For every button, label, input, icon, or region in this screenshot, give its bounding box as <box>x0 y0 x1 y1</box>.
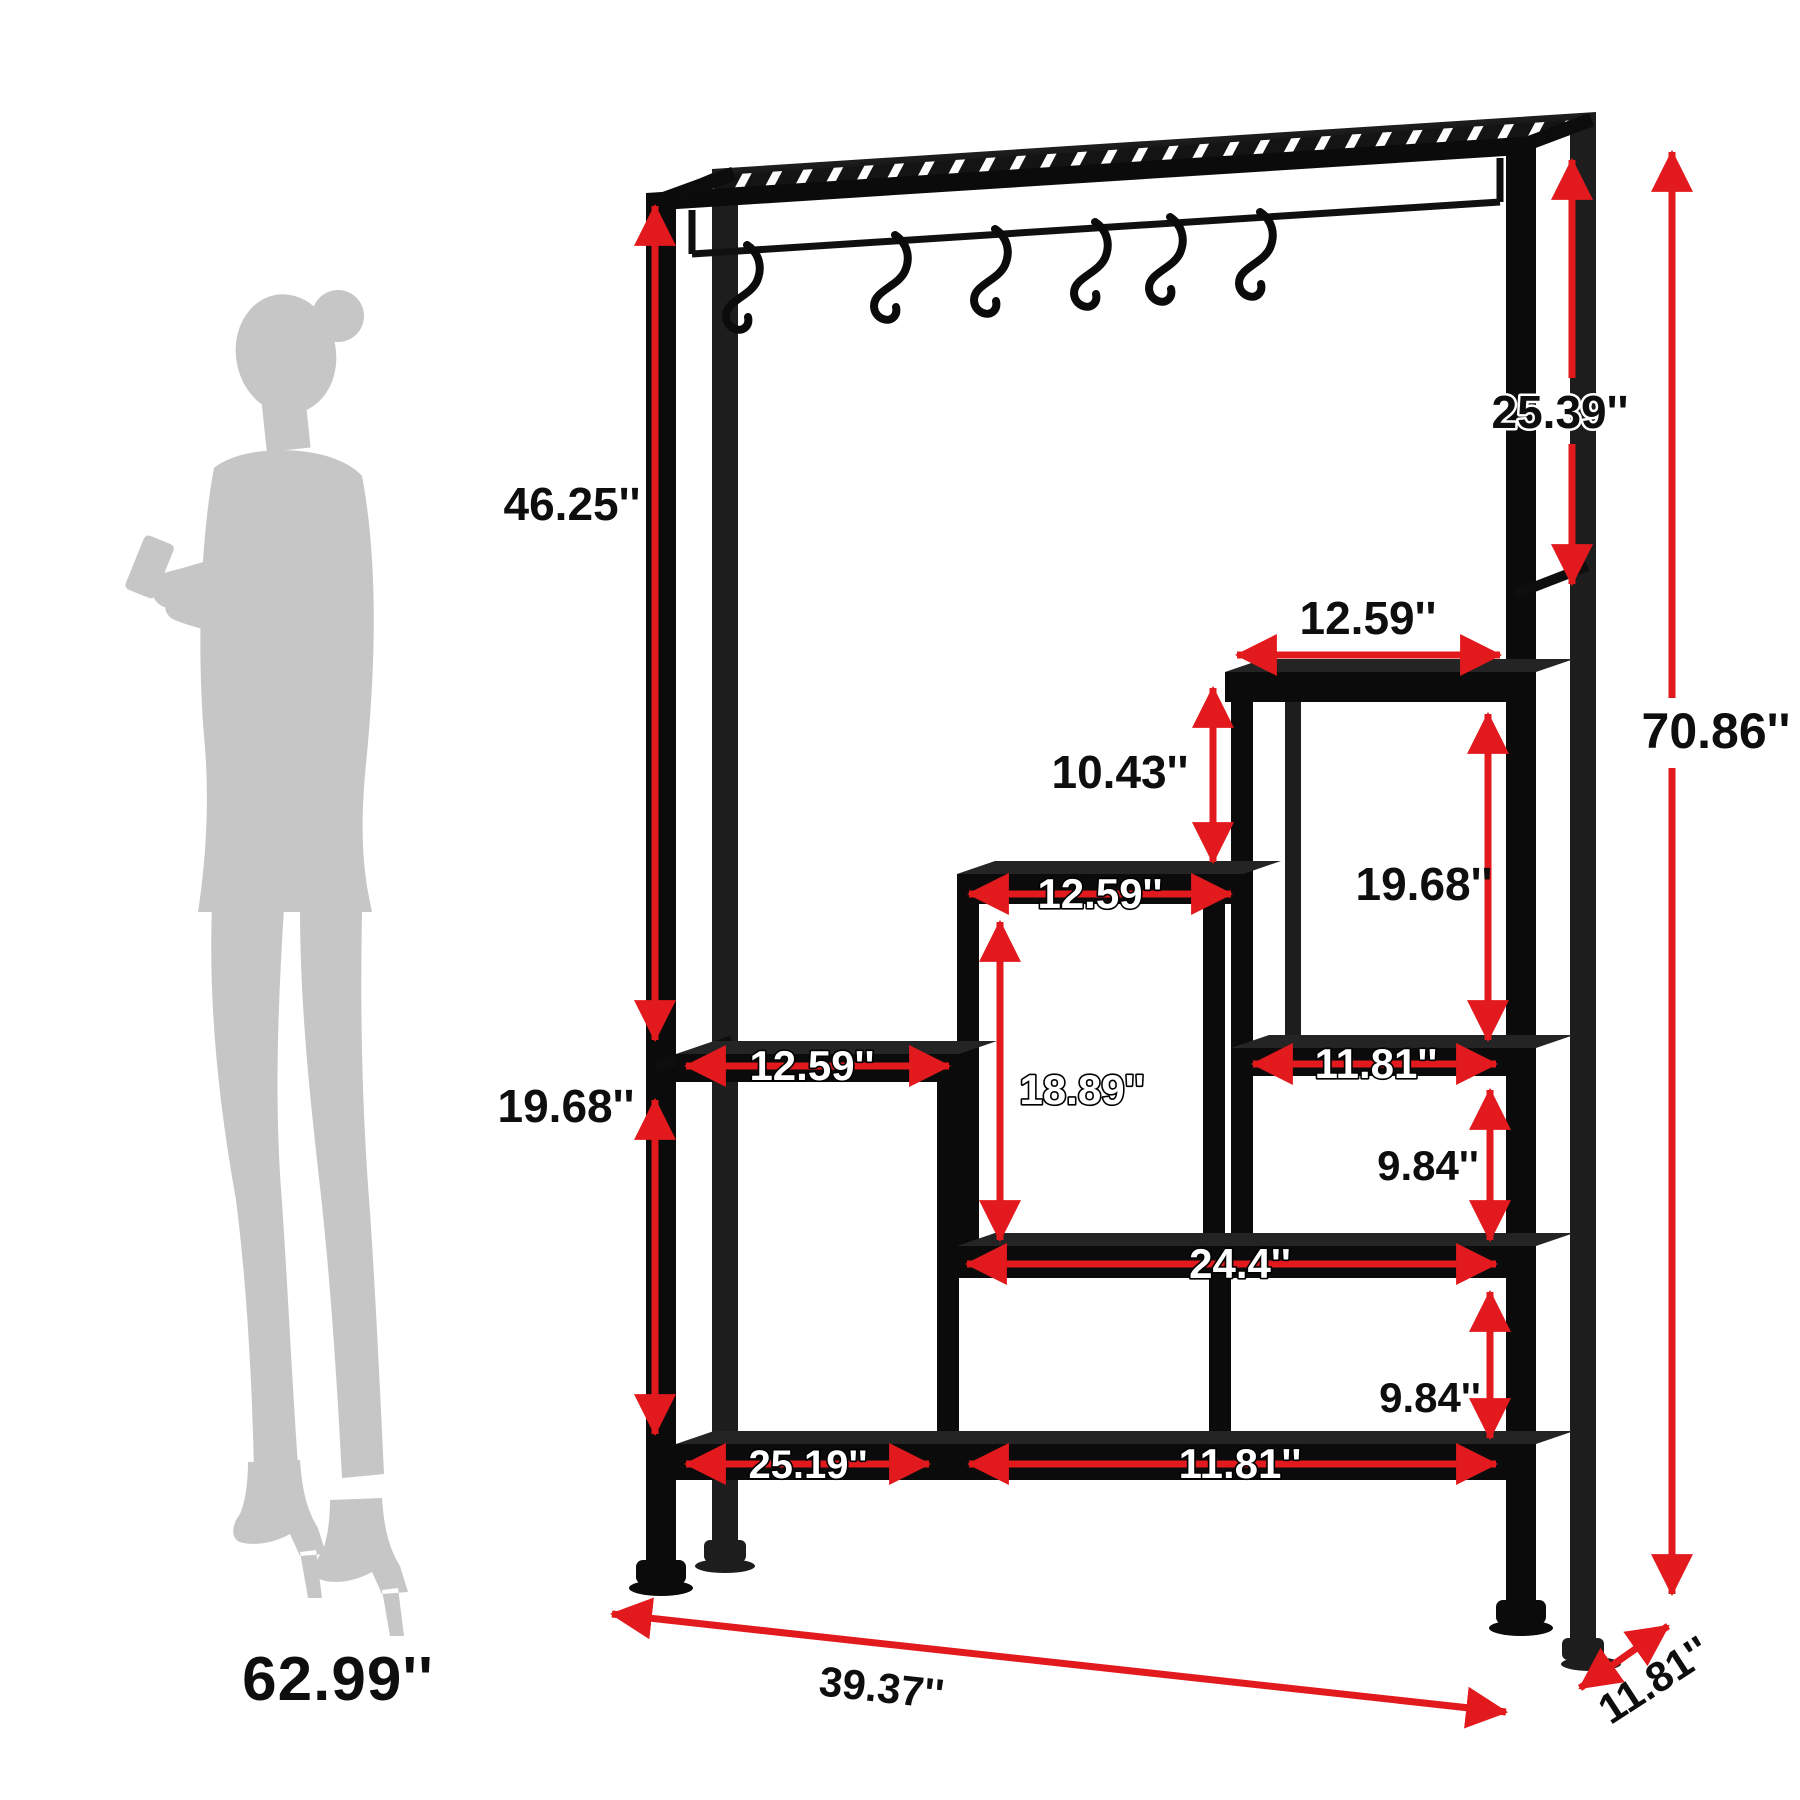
dim-right-lower-gap-label: 9.84'' <box>1379 1374 1481 1421</box>
front-left-foot-pad <box>629 1580 693 1596</box>
shoe-back <box>315 1498 408 1636</box>
dim-right-upper-opening-label: 19.68'' <box>1356 858 1493 910</box>
rear-left-foot-pad <box>695 1559 755 1573</box>
top-step-rear-leg <box>1285 700 1301 1044</box>
dim-overall-height-label: 70.86'' <box>1642 703 1791 759</box>
dimension-arrow-overall-width <box>612 1614 1506 1712</box>
s-hook-icon <box>1239 212 1273 297</box>
long-shelf-lower-leg <box>1209 1278 1231 1446</box>
left-shelf-leg <box>937 1082 959 1446</box>
s-hook-icon <box>1074 222 1108 307</box>
s-hook-icon <box>974 229 1008 314</box>
dim-overall-depth-label: 11.81'' <box>1590 1627 1719 1733</box>
person-silhouette <box>124 286 408 1636</box>
top-step-shelf <box>1225 672 1536 702</box>
top-step-shelf-topface <box>1225 659 1574 672</box>
right-shelf-lower-leg <box>1231 1076 1253 1246</box>
neck <box>261 396 310 452</box>
dim-right-upper-gap-label: 9.84'' <box>1377 1142 1479 1189</box>
product-dimension-diagram: 62.99'' <box>0 0 1800 1800</box>
middle-step-right-leg <box>1203 904 1225 1250</box>
front-right-post <box>1506 138 1536 1600</box>
shoe-front <box>233 1460 326 1598</box>
dim-lower-left-section-label: 19.68'' <box>498 1080 635 1132</box>
rear-right-foot <box>1562 1638 1604 1660</box>
dim-hook-bay-label: 25.39'' <box>1492 386 1629 438</box>
rear-left-foot <box>704 1540 746 1562</box>
dim-middle-shelf-width-label: 12.59'' <box>1037 870 1162 917</box>
dim-long-shelf-width-label: 24.4'' <box>1189 1240 1291 1287</box>
dim-bottom-left-width-label: 25.19'' <box>748 1443 867 1487</box>
diagram-canvas: 62.99'' <box>0 0 1800 1800</box>
dim-right-shelf-width-label: 11.81'' <box>1315 1040 1438 1087</box>
s-hook-icon <box>874 235 908 320</box>
s-hook-icon <box>1149 217 1183 302</box>
dim-middle-opening-label: 18.89'' <box>1019 1066 1144 1113</box>
front-right-foot-pad <box>1489 1620 1553 1636</box>
dim-top-step-rise-label: 10.43'' <box>1052 746 1189 798</box>
person-height-label: 62.99'' <box>242 1645 434 1714</box>
front-left-post <box>646 193 676 1560</box>
dim-top-shelf-width-label: 12.59'' <box>1300 592 1437 644</box>
middle-step-left-leg <box>957 904 979 1250</box>
dim-bottom-right-width-label: 11.81'' <box>1179 1440 1302 1487</box>
dim-upper-section-label: 46.25'' <box>504 478 641 530</box>
leg-front <box>211 905 298 1468</box>
dim-left-shelf-width-label: 12.59'' <box>749 1042 874 1089</box>
hook-rail <box>692 202 1500 254</box>
dim-overall-width-label: 39.37'' <box>817 1657 946 1717</box>
leg-back <box>300 908 384 1478</box>
rear-left-post <box>712 169 738 1540</box>
